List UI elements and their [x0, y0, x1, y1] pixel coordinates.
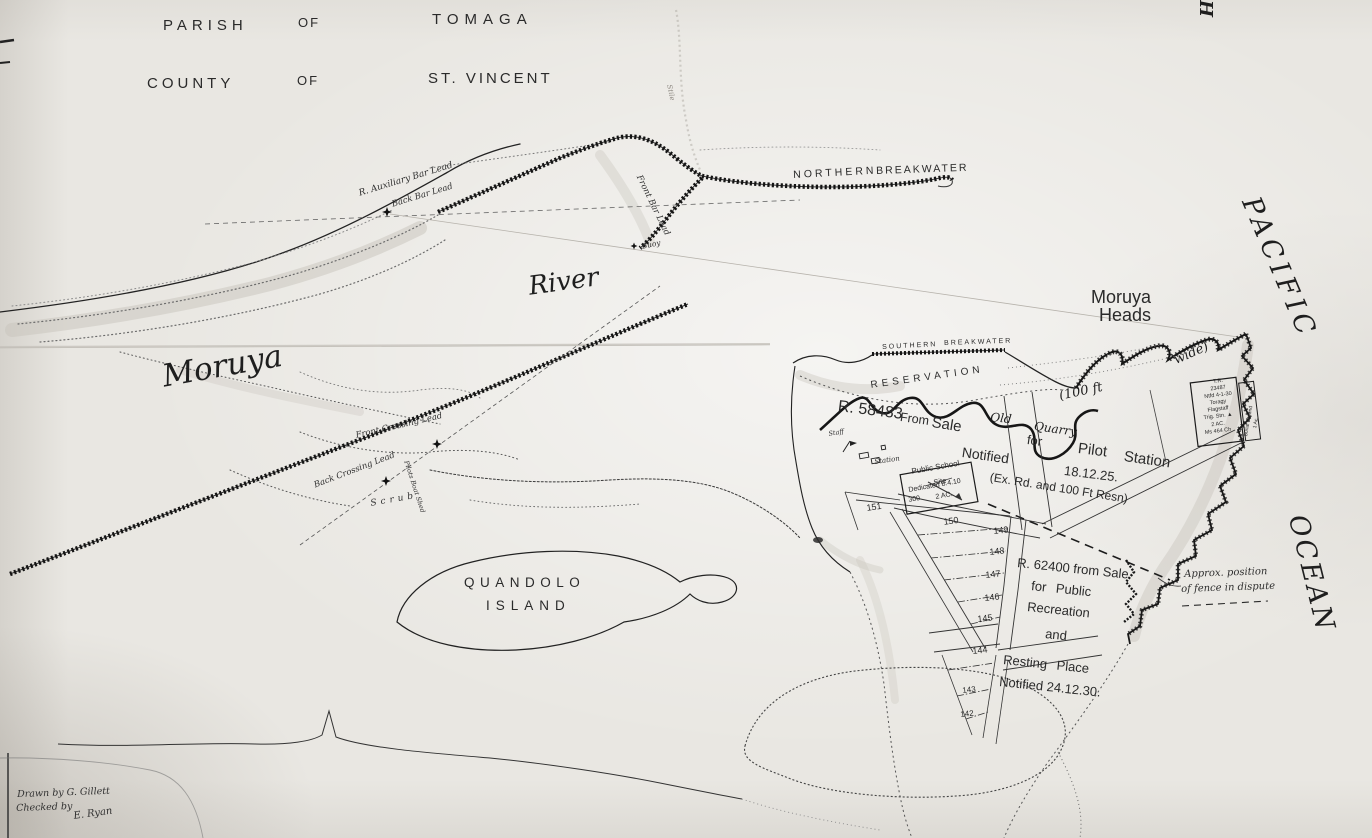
lead-lines: [205, 200, 1268, 606]
west-road-west-edge: [890, 512, 973, 652]
flagstaff-pole: [843, 441, 850, 452]
cross-street-2: [934, 644, 1000, 652]
left-edge-marks: [0, 40, 14, 42]
pilot-station-label-1: Pilot: [1077, 441, 1108, 459]
corner-letter-h: H: [1196, 0, 1214, 17]
east-road-east-edge: [1010, 520, 1026, 650]
front-crossing-lead-star: [432, 439, 442, 449]
river-shorelines: [0, 142, 880, 538]
quandolo-label-2: ISLAND: [486, 599, 571, 613]
buoy-marker: [631, 243, 638, 250]
lot-144: 144: [972, 645, 988, 656]
lot-143: 143: [962, 686, 976, 695]
school-arrowhead: [955, 493, 962, 500]
south-shore: [430, 470, 800, 538]
back-bar-lead-star: [382, 207, 392, 217]
map-sheet: PARISH OF TOMAGA COUNTY OF ST. VINCENT H…: [0, 0, 1372, 838]
r58483-sale: Sale: [931, 415, 963, 435]
lot-149: 149: [993, 525, 1009, 536]
r62400-line-4: and: [1045, 627, 1068, 642]
track-to-stile: [676, 10, 700, 170]
small-pond: [813, 537, 823, 543]
bar-lead-line: [205, 200, 800, 224]
bottom-shoreline: [58, 711, 742, 799]
island-and-lagoon: [58, 551, 1081, 838]
map-canvas: [0, 0, 1372, 838]
lot-142: 142: [960, 710, 974, 719]
title-county: COUNTY: [147, 76, 234, 91]
flagstaff-flag: [850, 441, 857, 446]
lot-147: 147: [985, 569, 1001, 580]
r58483-for: for: [1026, 433, 1043, 448]
lot-148: 148: [989, 546, 1005, 557]
lot-145: 145: [977, 613, 993, 624]
east-road-west-edge: [996, 516, 1011, 648]
back-crossing-lead-star: [381, 476, 391, 486]
checked-by-note: Checked by: [16, 802, 73, 813]
quandolo-label-1: QUANDOLO: [464, 576, 585, 590]
moruya-heads-label-1: Moruya: [1091, 288, 1151, 306]
southern-breakwater-line: [872, 350, 1005, 354]
title-of-1: OF: [298, 16, 320, 29]
cross-street-1: [929, 624, 998, 633]
title-st-vincent: ST. VINCENT: [428, 71, 553, 86]
fence-note-underline: [1182, 601, 1268, 606]
breakwater-walls: [10, 137, 1005, 574]
title-tomaga: TOMAGA: [432, 12, 533, 27]
moruya-heads-label-2: Heads: [1099, 306, 1151, 324]
lot-146: 146: [984, 592, 1000, 603]
title-of-2: OF: [297, 74, 319, 87]
title-parish: PARISH: [163, 18, 248, 33]
old-quarry-label-1: Old: [990, 411, 1012, 425]
